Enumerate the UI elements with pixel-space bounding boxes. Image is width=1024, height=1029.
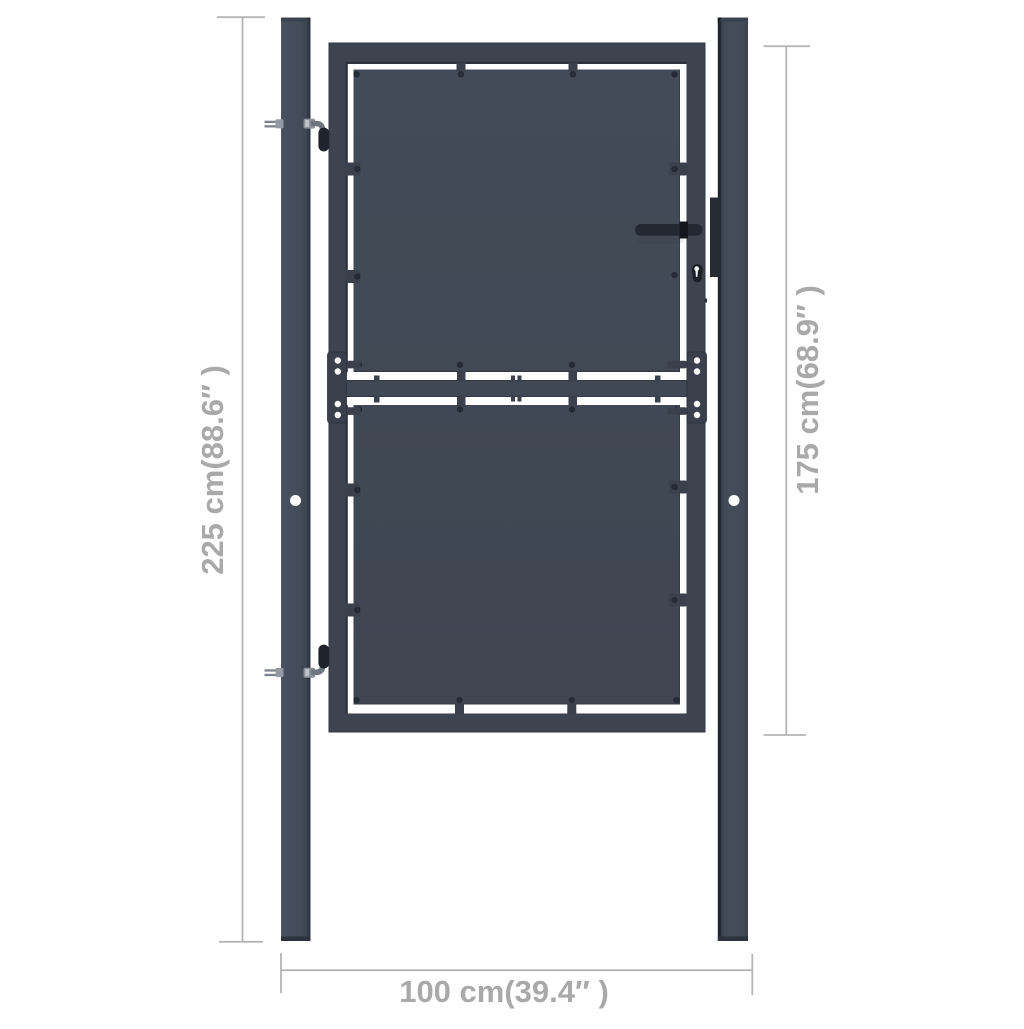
svg-text:175 cm(68.9″ ): 175 cm(68.9″ ): [790, 285, 825, 495]
svg-text:100 cm(39.4″ ): 100 cm(39.4″ ): [399, 974, 609, 1009]
svg-text:225 cm(88.6″ ): 225 cm(88.6″ ): [195, 365, 230, 575]
